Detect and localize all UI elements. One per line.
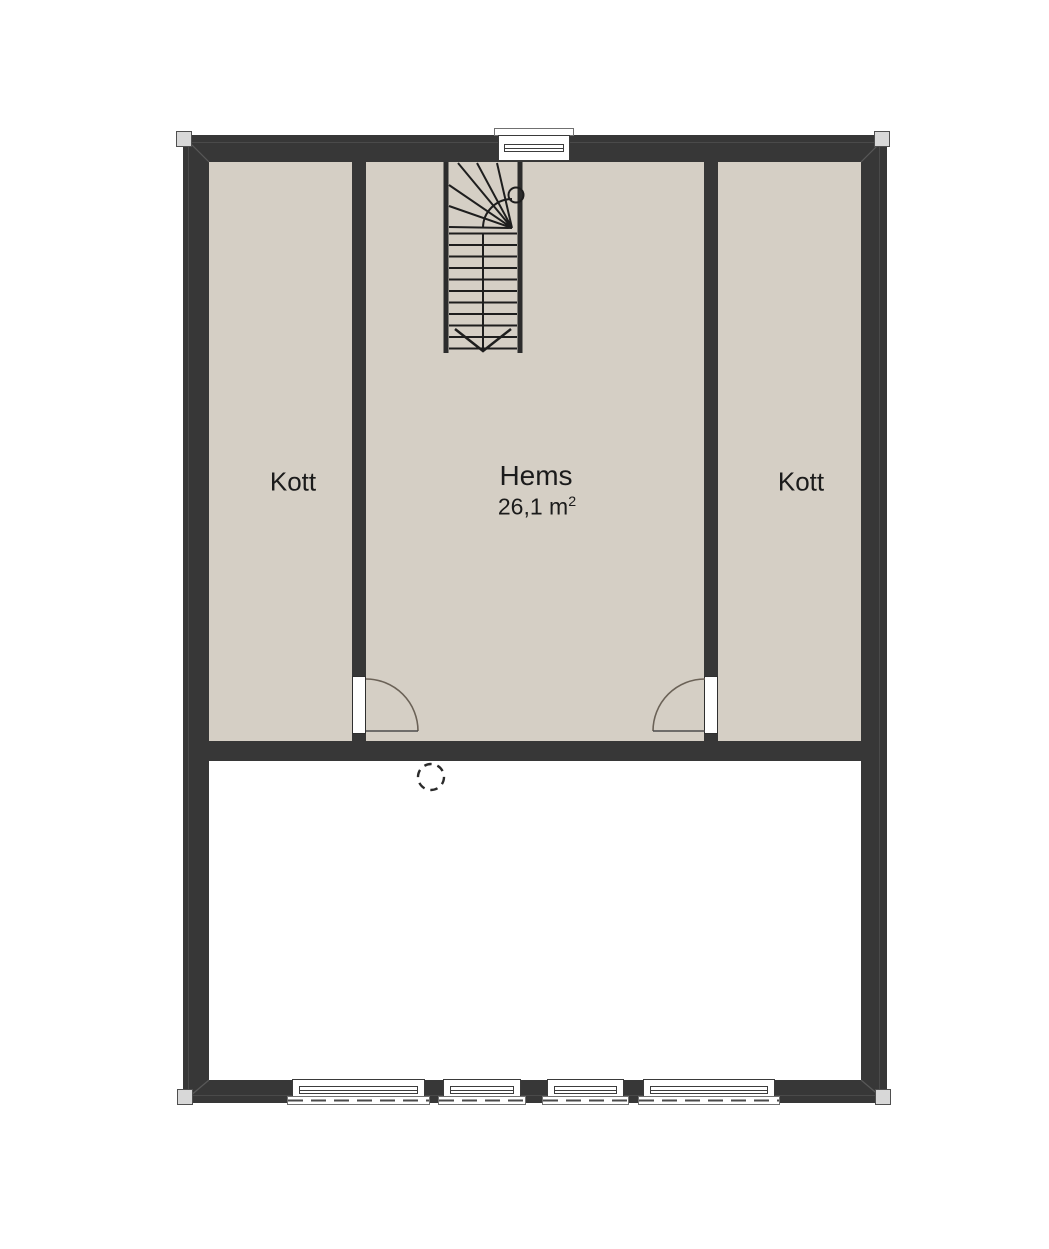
partition-right-stub bbox=[704, 734, 718, 741]
window-bottom-1-sill bbox=[287, 1096, 430, 1105]
window-bottom-3-glazing bbox=[554, 1086, 617, 1094]
window-bottom-4-glazing bbox=[650, 1086, 768, 1094]
window-bottom-2-glazing bbox=[450, 1086, 514, 1094]
window-top-glazing bbox=[504, 144, 564, 152]
open-void-area bbox=[209, 761, 861, 1080]
window-bottom-1-glazing bbox=[299, 1086, 418, 1094]
room-label-kott-left: Kott bbox=[270, 467, 316, 498]
corner-marker-bottom-left bbox=[177, 1089, 193, 1105]
window-bottom-2-sill bbox=[438, 1096, 526, 1105]
partition-left bbox=[352, 162, 366, 676]
window-bottom-3-sill bbox=[542, 1096, 629, 1105]
door-right bbox=[704, 676, 718, 734]
window-bottom-4-sill bbox=[638, 1096, 780, 1105]
wall-right bbox=[861, 135, 887, 1103]
wall-middle bbox=[209, 741, 861, 761]
wall-left bbox=[183, 135, 209, 1103]
room-label-hems: Hems bbox=[499, 460, 572, 492]
corner-marker-bottom-right bbox=[875, 1089, 891, 1105]
wall-seam-right bbox=[879, 135, 880, 1103]
room-area-superscript: 2 bbox=[568, 494, 576, 510]
attic-floor-area bbox=[209, 162, 861, 741]
partition-right bbox=[704, 162, 718, 676]
corner-marker-top-right bbox=[874, 131, 890, 147]
room-area-hems: 26,1 m2 bbox=[498, 494, 576, 521]
floor-plan: Kott Hems 26,1 m2 Kott bbox=[0, 0, 1049, 1249]
wall-seam-left bbox=[188, 135, 189, 1103]
room-area-value: 26,1 m bbox=[498, 494, 568, 520]
room-label-kott-right: Kott bbox=[778, 467, 824, 498]
corner-marker-top-left bbox=[176, 131, 192, 147]
partition-left-stub bbox=[352, 734, 366, 741]
door-left bbox=[352, 676, 366, 734]
